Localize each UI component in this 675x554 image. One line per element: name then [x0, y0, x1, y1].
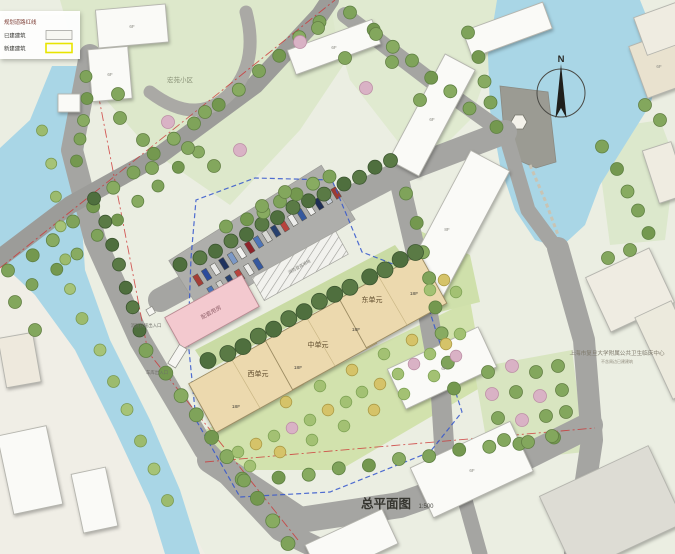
- tree: [250, 491, 264, 505]
- tree: [444, 85, 457, 98]
- tree: [356, 386, 368, 398]
- tree: [127, 166, 140, 179]
- legend-item-new: 新建建筑: [4, 45, 26, 53]
- floor-mark: 6F: [469, 468, 475, 473]
- tree: [654, 114, 667, 127]
- tree: [152, 180, 164, 192]
- tree: [71, 155, 83, 167]
- tree: [167, 132, 180, 145]
- tree: [189, 408, 203, 422]
- tree: [80, 71, 92, 83]
- tree: [425, 71, 438, 84]
- tree: [386, 56, 399, 69]
- legend: 规划道路红线 已建建筑 新建建筑: [0, 11, 80, 59]
- tree: [132, 195, 144, 207]
- tree: [560, 406, 573, 419]
- tree: [174, 389, 188, 403]
- tree: [238, 474, 251, 487]
- tree: [256, 200, 269, 213]
- tree: [317, 187, 331, 201]
- tree: [220, 346, 236, 362]
- tree: [271, 211, 285, 225]
- tree: [26, 249, 39, 262]
- tree: [307, 177, 320, 190]
- tree: [74, 133, 86, 145]
- garage-entrance-label: 车库出入口: [146, 369, 168, 376]
- tree: [188, 117, 201, 130]
- tree: [392, 252, 408, 268]
- tree: [429, 301, 442, 314]
- north-label: N: [558, 54, 565, 65]
- tree: [2, 264, 15, 277]
- tree: [377, 262, 393, 278]
- tree: [360, 82, 373, 95]
- tree: [212, 98, 225, 111]
- tree: [253, 65, 266, 78]
- tree: [46, 158, 57, 169]
- tree: [400, 187, 413, 200]
- tree: [362, 269, 378, 285]
- tree: [408, 245, 424, 261]
- tree: [273, 49, 286, 62]
- tree: [296, 304, 312, 320]
- tree: [107, 181, 120, 194]
- tree: [362, 459, 375, 472]
- tree: [302, 468, 315, 481]
- tree: [484, 96, 497, 109]
- unit-east-label: 东单元: [362, 295, 383, 304]
- tree: [374, 378, 386, 390]
- tree: [106, 238, 119, 251]
- tree: [353, 170, 367, 184]
- unit-middle-label: 中单元: [308, 340, 329, 349]
- tree: [378, 348, 390, 360]
- tree: [148, 463, 160, 475]
- tree: [220, 450, 234, 464]
- tree: [208, 160, 221, 173]
- tree: [516, 414, 529, 427]
- tree: [244, 460, 256, 472]
- tree: [280, 396, 292, 408]
- tree: [463, 102, 476, 115]
- tree: [392, 368, 404, 380]
- legend-item-existing: 已建建筑: [4, 32, 26, 40]
- floor-mark: 6F: [656, 64, 662, 69]
- tree: [255, 217, 269, 231]
- tree: [119, 281, 132, 294]
- tree: [340, 396, 352, 408]
- tree: [29, 324, 42, 337]
- tree: [492, 412, 505, 425]
- tree: [76, 313, 88, 325]
- tree: [424, 284, 436, 296]
- tree: [135, 435, 147, 447]
- tree: [250, 438, 262, 450]
- legend-item-redline: 规划道路红线: [4, 18, 37, 26]
- tree: [147, 147, 160, 160]
- tree: [423, 450, 436, 463]
- floor-mark: 18F: [294, 365, 302, 371]
- tree: [224, 234, 238, 248]
- tree: [199, 106, 212, 119]
- tree: [200, 353, 216, 369]
- floor-mark: 18F: [232, 404, 240, 410]
- tree: [162, 116, 175, 129]
- floor-mark: 6F: [441, 366, 447, 371]
- tree: [510, 386, 523, 399]
- tree: [88, 192, 101, 205]
- tree: [342, 279, 358, 295]
- tree: [266, 321, 282, 337]
- tree: [55, 221, 66, 232]
- tree: [632, 204, 645, 217]
- tree: [108, 376, 120, 388]
- tree: [522, 436, 535, 449]
- hospital-subtitle: 不含周边已建建筑: [601, 358, 633, 364]
- unit-west-label: 西单元: [248, 369, 269, 378]
- tree: [312, 22, 325, 35]
- tree: [26, 279, 38, 291]
- tree: [393, 453, 406, 466]
- tree: [639, 99, 652, 112]
- tree: [139, 344, 153, 358]
- tree: [450, 350, 462, 362]
- tree: [272, 471, 285, 484]
- tree: [232, 446, 244, 458]
- floor-mark: 6F: [129, 24, 135, 29]
- tree: [453, 443, 466, 456]
- tree: [279, 186, 292, 199]
- tree: [235, 339, 251, 355]
- floor-mark: 6F: [107, 72, 113, 77]
- tree: [440, 338, 452, 350]
- tree: [438, 274, 450, 286]
- floor-mark: 8F: [444, 227, 450, 232]
- site-plan-drawing: 宏苑小区 西单元 中单元 东单元 18F 18F 18F 18F 配套用房 消防…: [0, 0, 675, 554]
- tree: [60, 254, 71, 265]
- tree: [162, 495, 174, 507]
- tree: [534, 390, 547, 403]
- tree: [406, 334, 418, 346]
- tree: [332, 462, 345, 475]
- tree: [556, 384, 569, 397]
- tree: [286, 200, 300, 214]
- tree: [314, 380, 326, 392]
- tree: [339, 52, 352, 65]
- tree: [302, 194, 316, 208]
- site-plan: 宏苑小区 西单元 中单元 东单元 18F 18F 18F 18F 配套用房 消防…: [0, 0, 675, 554]
- tree: [398, 388, 410, 400]
- tree: [540, 410, 553, 423]
- tree: [448, 382, 461, 395]
- tree: [344, 6, 357, 19]
- tree: [454, 328, 466, 340]
- tree: [99, 215, 112, 228]
- tree: [241, 213, 254, 226]
- tree: [232, 83, 245, 96]
- fire-entrance-label: 消防救援出入口: [131, 322, 162, 329]
- floor-mark: 18F: [410, 291, 418, 297]
- legend-swatch-existing: [46, 31, 72, 40]
- tree: [346, 364, 358, 376]
- tree: [182, 142, 195, 155]
- tree: [478, 75, 491, 88]
- page-title: 总平面图: [361, 496, 411, 511]
- tree: [410, 216, 423, 229]
- tree: [621, 185, 634, 198]
- tree: [286, 422, 298, 434]
- tree: [530, 366, 543, 379]
- tree: [428, 370, 440, 382]
- tree: [234, 144, 247, 157]
- tree: [121, 404, 133, 416]
- tree: [94, 344, 106, 356]
- tree: [250, 328, 266, 344]
- tree: [323, 170, 336, 183]
- tree: [220, 220, 233, 233]
- tree: [114, 112, 127, 125]
- tree: [65, 284, 76, 295]
- floor-mark: 6F: [429, 117, 435, 122]
- tree: [67, 215, 80, 228]
- tree: [112, 88, 125, 101]
- tree: [337, 177, 351, 191]
- tree: [205, 430, 219, 444]
- tree: [268, 430, 280, 442]
- tree: [506, 360, 519, 373]
- tree: [611, 163, 624, 176]
- tree: [311, 293, 327, 309]
- tree: [482, 366, 495, 379]
- tree: [274, 446, 286, 458]
- tree: [193, 251, 207, 265]
- tree: [552, 360, 565, 373]
- legend-swatch-new: [46, 44, 72, 53]
- tree: [423, 272, 436, 285]
- tree: [384, 154, 398, 168]
- floor-mark: 18F: [352, 327, 360, 333]
- tree: [78, 115, 90, 127]
- tree: [462, 26, 475, 39]
- hospital-name: 上海市复旦大学附属公共卫生临床中心: [569, 349, 665, 357]
- tree: [306, 434, 318, 446]
- tree: [327, 286, 343, 302]
- tree: [294, 36, 307, 49]
- tree: [450, 286, 462, 298]
- tree: [642, 227, 655, 240]
- tree: [424, 348, 436, 360]
- tree: [498, 434, 511, 447]
- tree: [408, 358, 420, 370]
- tree: [91, 229, 103, 241]
- tree: [483, 440, 496, 453]
- tree: [368, 404, 380, 416]
- tree: [472, 51, 485, 64]
- tree: [209, 244, 223, 258]
- tree: [37, 125, 48, 136]
- tree: [240, 227, 254, 241]
- tree: [304, 414, 316, 426]
- tree: [172, 161, 184, 173]
- tree: [624, 244, 637, 257]
- tree: [51, 263, 63, 275]
- tree: [486, 388, 499, 401]
- tree: [137, 134, 150, 147]
- tree: [414, 94, 427, 107]
- tree: [9, 296, 22, 309]
- tree: [81, 93, 93, 105]
- tree: [173, 258, 187, 272]
- tree: [281, 311, 297, 327]
- tree: [266, 514, 280, 528]
- tree: [112, 214, 124, 226]
- tree: [338, 420, 350, 432]
- tree: [281, 537, 295, 551]
- tree: [113, 258, 126, 271]
- tree: [50, 191, 61, 202]
- tree: [596, 140, 609, 153]
- tree: [46, 234, 59, 247]
- tree: [126, 301, 139, 314]
- tree: [602, 252, 615, 265]
- tree: [386, 40, 399, 53]
- tree: [290, 188, 303, 201]
- tree: [406, 54, 419, 67]
- tree: [368, 160, 382, 174]
- tree: [546, 430, 559, 443]
- tree: [146, 162, 159, 175]
- tree: [71, 248, 83, 260]
- tree: [490, 121, 503, 134]
- neighborhood-label: 宏苑小区: [167, 75, 194, 84]
- drawing-scale: 1:500: [418, 504, 434, 510]
- tree: [322, 404, 334, 416]
- tree: [370, 28, 383, 41]
- floor-mark: 6F: [331, 45, 337, 50]
